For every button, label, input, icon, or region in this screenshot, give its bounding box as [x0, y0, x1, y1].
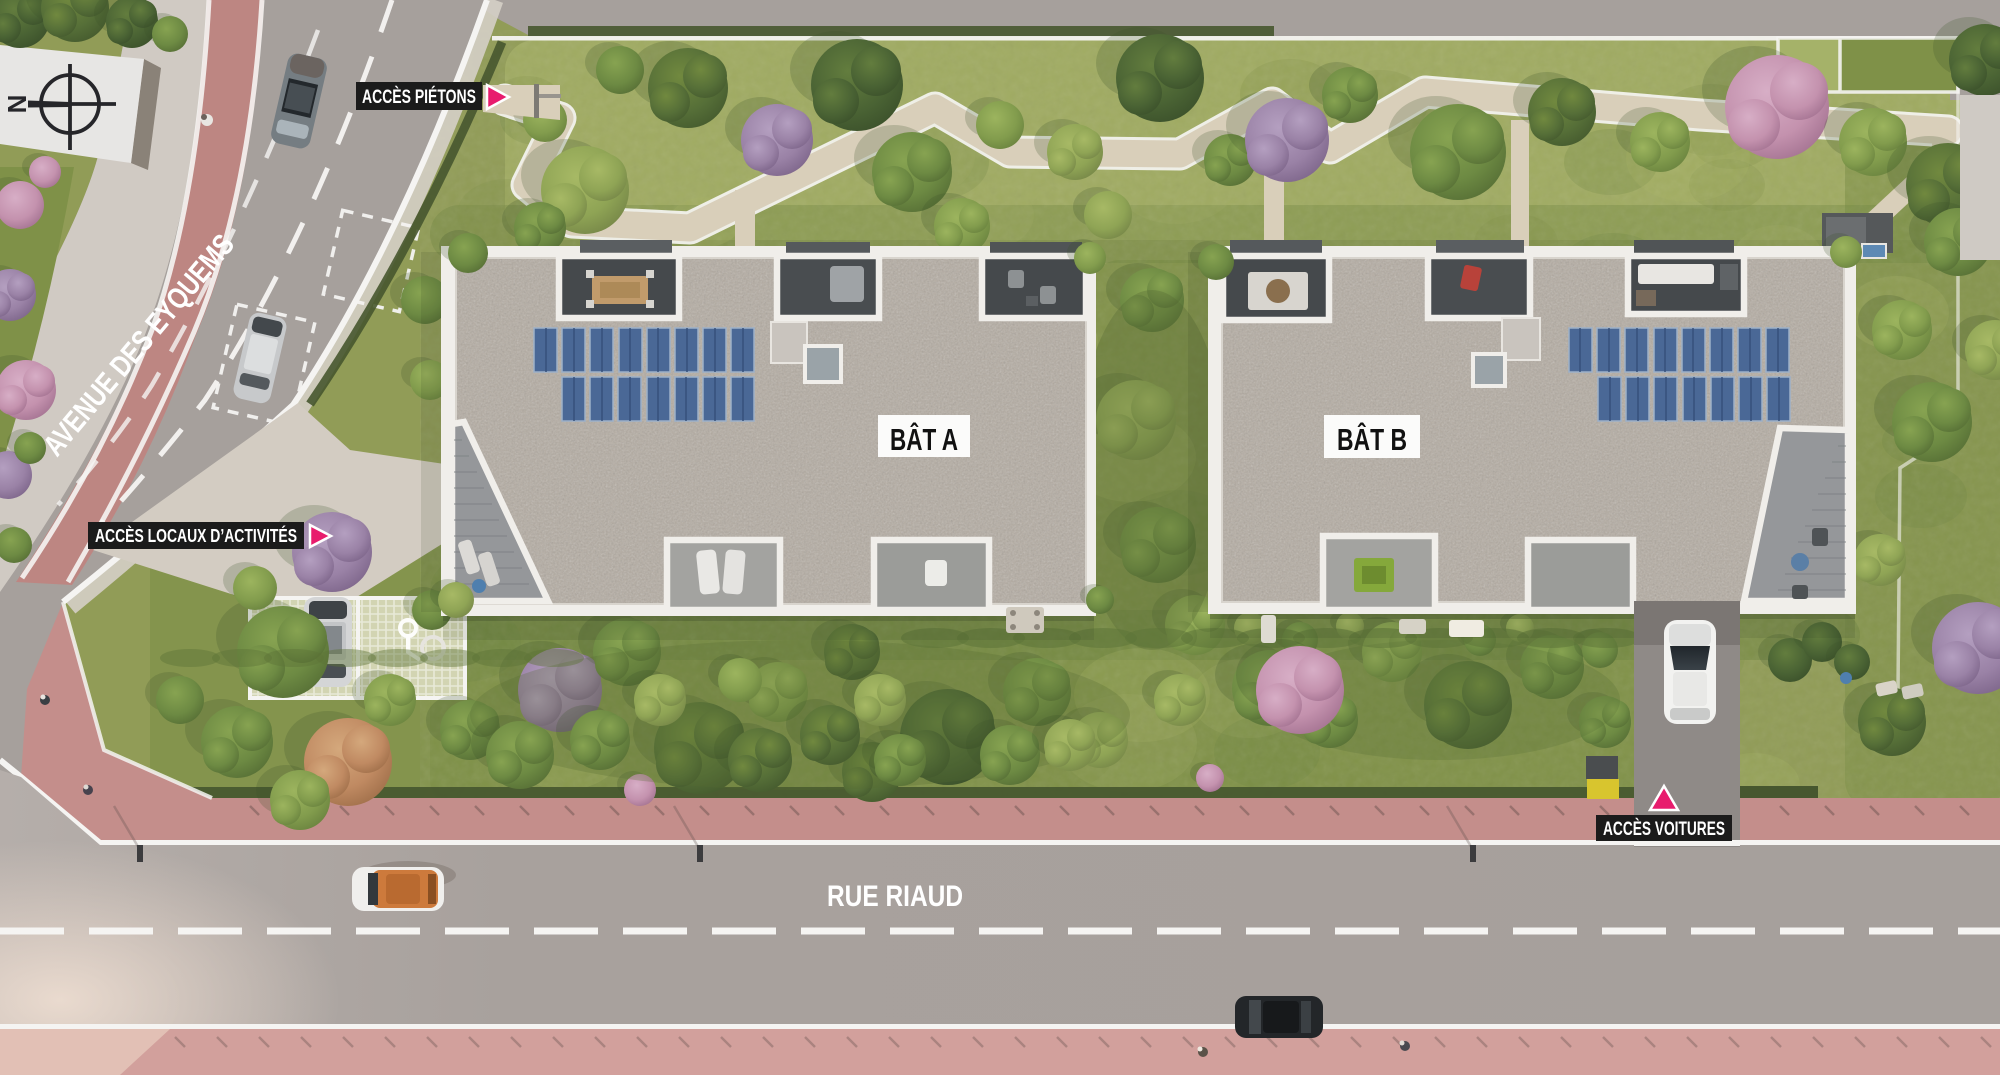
svg-text:ACCÈS LOCAUX D’ACTIVITÉS: ACCÈS LOCAUX D’ACTIVITÉS: [95, 525, 297, 546]
svg-text:ACCÈS VOITURES: ACCÈS VOITURES: [1603, 818, 1725, 840]
svg-text:ACCÈS PIÉTONS: ACCÈS PIÉTONS: [362, 86, 476, 108]
svg-text:N: N: [2, 95, 32, 114]
svg-text:RUE RIAUD: RUE RIAUD: [827, 880, 963, 913]
svg-text:BÂT A: BÂT A: [890, 421, 958, 457]
svg-text:BÂT B: BÂT B: [1337, 421, 1407, 457]
